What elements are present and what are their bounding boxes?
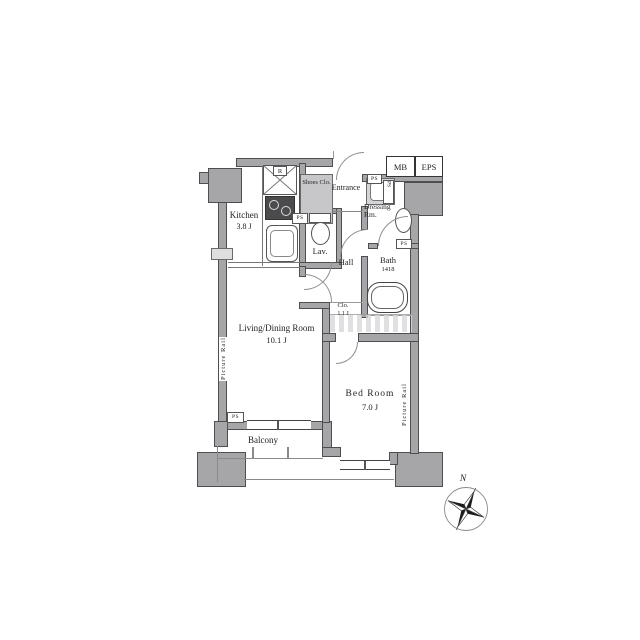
wall-bedroom-north-right [358,333,419,342]
porch-line [333,151,335,159]
compass [438,480,494,536]
north-letter: N [460,474,466,484]
balcony-left-edge [217,446,219,482]
north-label: N [455,475,471,485]
entrance-step-line [333,211,362,213]
bedroom-name: Bed Room [346,389,395,399]
bath-size-text: 1418 [382,266,395,273]
stove-burner [281,206,291,216]
living-area: 10.1 J [228,336,325,345]
compass-rose [438,480,494,536]
balcony-front-edge [217,458,323,460]
ps-shaft-right: PS [383,180,394,204]
ps-label: PS [371,176,378,182]
window-sash-tick [364,461,366,470]
ps-label: PS [385,181,391,187]
picture-rail-text: Picture Rail [401,384,408,427]
kitchen-small-counter [211,248,233,260]
eps-label: EPS [422,162,437,172]
lavatory-label: Lav. [303,247,337,256]
ps-label: PS [296,215,303,221]
refrigerator-letter: R [278,168,282,175]
closet-label: Clo. [330,303,356,310]
kitchen-sink [266,225,298,262]
bathtub-inner [371,286,404,309]
entrance-label: Entrance [326,184,366,192]
kitchen-area: 3.8 J [222,223,266,231]
kitchen-living-counter-line [228,262,300,268]
floor-plan: R Shoes Clo. PS PS PS PS PS MB [0,0,640,640]
ps-shaft-bath: PS [396,239,412,249]
kitchen-label: Kitchen [222,211,266,220]
entrance-door-arc [336,152,364,180]
dressing-door-arc [340,229,368,257]
window-living-balcony [247,420,311,430]
column-top-right [404,182,443,216]
column-bottom-right [395,452,443,487]
bedroom-area-text: 7.0 J [362,402,378,412]
mb-label: MB [394,162,407,172]
toilet-bowl [311,222,330,245]
ps-shaft-kitchen: PS [292,213,308,224]
wall-bedroom-step [322,447,341,457]
balcony-name: Balcony [248,435,278,445]
wall-bedroom-window-stub [389,452,398,465]
bathtub [367,282,408,313]
wall-hall-east-bottom [361,256,368,318]
column-top-left [208,168,242,203]
hall-label: Hall [331,258,361,267]
bedroom-door-arc [336,342,358,364]
balcony-rail-tick [252,447,254,459]
closet-area: 1.1 J [330,311,356,317]
bath-name: Bath [380,255,396,265]
wall-bath-north-left [368,243,378,249]
kitchen-name: Kitchen [230,210,259,220]
bath-label: Bath [370,256,406,265]
eps-box: EPS [415,156,443,177]
picture-rail-text: Picture Rail [220,338,227,381]
living-name: Living/Dining Room [239,323,315,333]
mb-box: MB [386,156,415,177]
ps-label: PS [400,241,407,247]
closet-name: Clo. [337,302,348,309]
ps-label: PS [232,414,239,420]
picture-rail-right: Picture Rail [400,383,410,427]
living-area-text: 10.1 J [266,335,286,345]
stove [265,196,295,220]
stove-burner [269,200,279,210]
sink-basin [270,230,294,257]
wall-left-junction [214,421,228,447]
hall-name: Hall [339,257,354,267]
dressing-label: Dressing Rm. [364,203,400,219]
entrance-name: Entrance [332,183,360,192]
closet-area-text: 1.1 J [337,311,348,317]
window-sash-tick [277,421,279,430]
lavatory-name: Lav. [313,246,328,256]
wall-left [218,202,227,423]
living-label: Living/Dining Room [228,324,325,333]
kitchen-area-text: 3.8 J [236,222,251,231]
picture-rail-left: Picture Rail [219,337,229,381]
hall-living-door-arc [304,274,332,302]
ps-shaft-entrance: PS [367,174,382,184]
dressing-name: Dressing Rm. [364,202,391,219]
refrigerator-label: R [273,166,287,176]
balcony-label: Balcony [232,436,294,445]
window-bedroom [340,460,390,470]
ps-shaft-living: PS [227,412,244,423]
slab-edge-line [244,479,394,481]
balcony-rail-tick [287,447,289,459]
bath-size: 1418 [370,267,406,274]
column-top-left-stub [199,172,209,184]
